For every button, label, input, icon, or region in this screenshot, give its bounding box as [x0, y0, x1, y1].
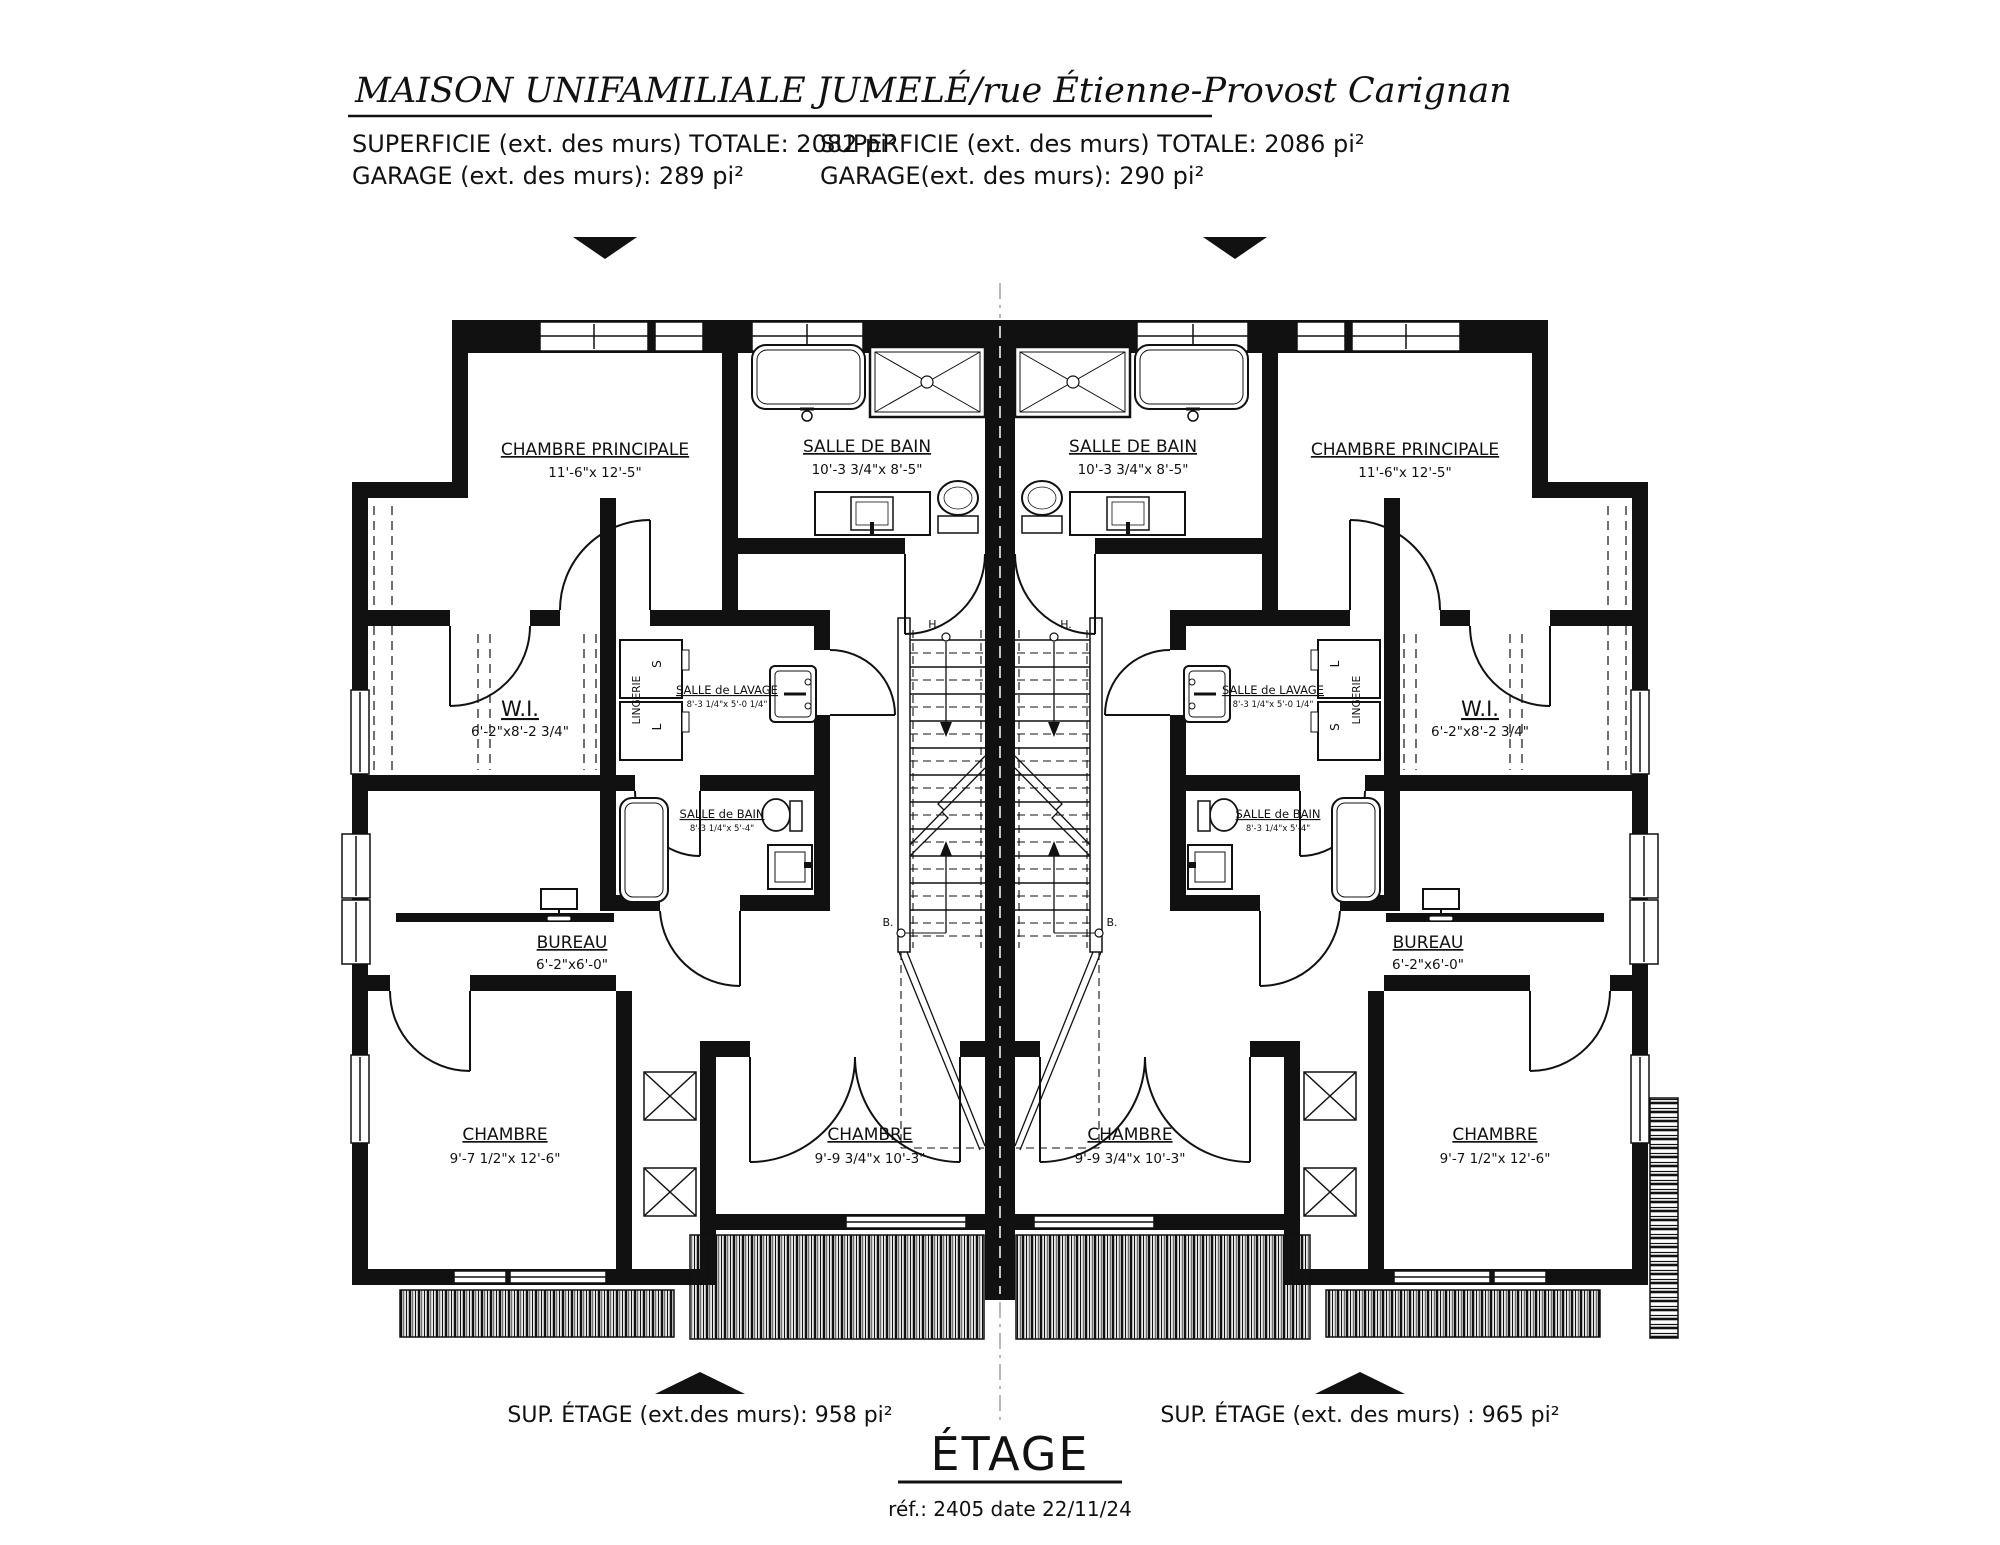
- floor-plan-sheet: MAISON UNIFAMILIALE JUMELÉ/rue Étienne-P…: [0, 0, 2000, 1545]
- reference-line: réf.: 2405 date 22/11/24: [888, 1497, 1132, 1521]
- room-dim-salle-de-bain-left: 10'-3 3/4"x 8'-5": [812, 462, 923, 478]
- room-label-chambre2-left: CHAMBRE: [827, 1125, 912, 1145]
- room-dim-chambre2-right: 9'-9 3/4"x 10'-3": [1075, 1151, 1186, 1167]
- room-label-salle-de-lavage-left: SALLE de LAVAGE: [676, 683, 778, 697]
- room-dim-salle-de-lavage-left: 8'-3 1/4"x 5'-0 1/4": [687, 700, 768, 710]
- floor-plan-drawing: MAISON UNIFAMILIALE JUMELÉ/rue Étienne-P…: [0, 0, 2000, 1545]
- left-section-marker-triangle: [573, 237, 637, 259]
- room-dim-wi-left: 6'-2"x8'-2 3/4": [471, 724, 569, 740]
- room-dim-chambre1-left: 9'-7 1/2"x 12'-6": [450, 1151, 561, 1167]
- floor-name: ÉTAGE: [931, 1427, 1090, 1481]
- room-label-bureau-left: BUREAU: [537, 933, 608, 953]
- room-label-chambre-principale-right: CHAMBRE PRINCIPALE: [1311, 440, 1499, 460]
- stair-haut-right: H.: [1060, 618, 1072, 631]
- room-dim-salle-de-bain2-right: 8'-3 1/4"x 5'-4": [1246, 824, 1310, 834]
- room-dim-chambre-principale-left: 11'-6"x 12'-5": [548, 465, 641, 481]
- room-label-wi-right: W.I.: [1461, 697, 1499, 721]
- label-secheuse-left: S: [650, 660, 664, 668]
- room-dim-salle-de-lavage-right: 8'-3 1/4"x 5'-0 1/4": [1233, 700, 1314, 710]
- stair-haut-left: H.: [928, 618, 940, 631]
- room-label-chambre1-right: CHAMBRE: [1452, 1125, 1537, 1145]
- room-label-salle-de-bain2-left: SALLE de BAIN: [680, 807, 765, 821]
- stair-bas-left: B.: [882, 916, 893, 929]
- right-section-marker-triangle: [1203, 237, 1267, 259]
- room-label-chambre2-right: CHAMBRE: [1087, 1125, 1172, 1145]
- sheet-title: MAISON UNIFAMILIALE JUMELÉ/rue Étienne-P…: [354, 69, 1512, 111]
- label-laveuse-right: L: [1328, 660, 1342, 667]
- room-label-salle-de-bain2-right: SALLE de BAIN: [1236, 807, 1321, 821]
- left-unit-superficie: SUPERFICIE (ext. des murs) TOTALE: 2082 …: [352, 130, 897, 158]
- room-dim-wi-right: 6'-2"x8'-2 3/4": [1431, 724, 1529, 740]
- room-dim-salle-de-bain-right: 10'-3 3/4"x 8'-5": [1078, 462, 1189, 478]
- room-label-chambre-principale-left: CHAMBRE PRINCIPALE: [501, 440, 689, 460]
- left-unit-garage: GARAGE (ext. des murs): 289 pi²: [352, 162, 744, 190]
- left-footer-marker-triangle: [655, 1372, 745, 1394]
- room-dim-chambre2-left: 9'-9 3/4"x 10'-3": [815, 1151, 926, 1167]
- room-label-bureau-right: BUREAU: [1393, 933, 1464, 953]
- label-secheuse-right: S: [1328, 723, 1342, 731]
- room-label-salle-de-bain-left: SALLE DE BAIN: [803, 437, 931, 457]
- stair-bas-right: B.: [1106, 916, 1117, 929]
- room-label-salle-de-lavage-right: SALLE de LAVAGE: [1222, 683, 1324, 697]
- right-unit-superficie: SUPERFICIE (ext. des murs) TOTALE: 2086 …: [820, 130, 1365, 158]
- room-label-lingerie-right: LINGERIE: [1351, 676, 1363, 725]
- label-laveuse-left: L: [650, 723, 664, 730]
- room-label-salle-de-bain-right: SALLE DE BAIN: [1069, 437, 1197, 457]
- right-edge-roof-hatch: [1650, 1098, 1678, 1338]
- sup-etage-left: SUP. ÉTAGE (ext.des murs): 958 pi²: [507, 1402, 892, 1428]
- right-footer-marker-triangle: [1315, 1372, 1405, 1394]
- room-label-chambre1-left: CHAMBRE: [462, 1125, 547, 1145]
- room-dim-chambre-principale-right: 11'-6"x 12'-5": [1358, 465, 1451, 481]
- room-label-wi-left: W.I.: [501, 697, 539, 721]
- room-dim-chambre1-right: 9'-7 1/2"x 12'-6": [1440, 1151, 1551, 1167]
- room-label-lingerie-left: LINGERIE: [631, 676, 643, 725]
- room-dim-salle-de-bain2-left: 8'-3 1/4"x 5'-4": [690, 824, 754, 834]
- sup-etage-right: SUP. ÉTAGE (ext. des murs) : 965 pi²: [1160, 1402, 1559, 1428]
- right-unit-garage: GARAGE(ext. des murs): 290 pi²: [820, 162, 1204, 190]
- room-dim-bureau-right: 6'-2"x6'-0": [1392, 957, 1464, 973]
- room-dim-bureau-left: 6'-2"x6'-0": [536, 957, 608, 973]
